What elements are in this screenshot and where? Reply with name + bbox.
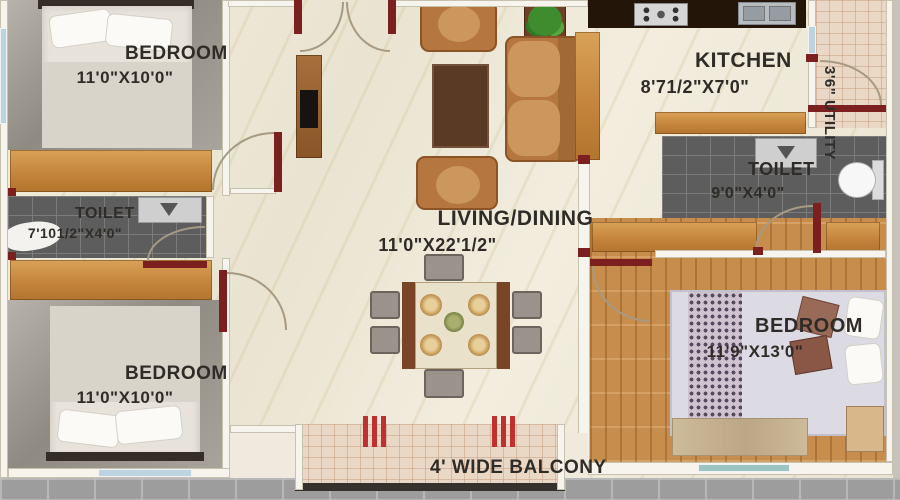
dining-chair — [370, 326, 400, 354]
stove-icon — [634, 3, 688, 26]
plate-icon — [468, 294, 490, 316]
room-label: LIVING/DINING 11'0"X22'1/2" — [330, 206, 545, 259]
plant-icon — [528, 4, 562, 36]
window — [0, 28, 7, 124]
rug — [672, 418, 808, 456]
door-jamb — [753, 247, 763, 255]
door-leaf — [590, 259, 652, 266]
door-jamb — [8, 188, 16, 196]
room-dims: 11'9"X13'0" — [707, 342, 804, 361]
plate-icon — [420, 334, 442, 356]
room-name: KITCHEN — [695, 48, 792, 74]
sliding-door-marker — [381, 416, 386, 447]
sliding-door-marker — [363, 416, 368, 447]
wall — [578, 155, 590, 462]
window — [98, 469, 192, 477]
door-jamb — [8, 252, 16, 260]
armchair-cushion — [438, 6, 480, 42]
sofa-cushion — [508, 41, 560, 97]
window — [808, 26, 816, 54]
room-dims: 11'0"X10'0" — [77, 388, 174, 407]
kitchen-tall-cabinet — [575, 32, 600, 160]
sink-bowl — [743, 6, 765, 21]
wall — [886, 0, 893, 462]
room-dims: 11'0"X10'0" — [77, 68, 174, 87]
wall — [655, 250, 886, 258]
toilet-bowl-icon — [838, 162, 876, 198]
wall — [230, 425, 302, 433]
dining-chair — [370, 291, 400, 319]
coffee-table — [432, 64, 489, 148]
center-dish-icon — [444, 312, 464, 332]
armchair-cushion — [436, 166, 480, 204]
sofa-cushion — [508, 100, 560, 156]
sliding-door-marker — [492, 416, 497, 447]
room-label: TOILET 7'101/2"X4'0" — [10, 204, 140, 244]
shower-icon — [160, 203, 178, 216]
room-name: TOILET — [75, 204, 135, 224]
wall — [206, 196, 214, 258]
dining-chair — [512, 326, 542, 354]
room-label: BEDROOM 11'0"X10'0" — [30, 362, 220, 410]
room-name: 3'6" UTILITY — [819, 66, 838, 160]
right-margin — [893, 0, 900, 478]
balcony-edge — [295, 483, 565, 491]
room-label: BEDROOM 11'0"X10'0" — [30, 42, 220, 90]
dining-chair — [424, 369, 464, 398]
door-jamb — [578, 155, 590, 164]
bedside-cabinet — [846, 406, 884, 452]
plate-icon — [420, 294, 442, 316]
door-leaf — [274, 132, 282, 192]
dining-chair — [512, 291, 542, 319]
door-jamb — [578, 248, 590, 257]
room-name: 4' WIDE BALCONY — [430, 456, 607, 480]
wall — [228, 0, 298, 7]
wall — [230, 433, 295, 478]
door-jamb — [806, 54, 818, 62]
window — [698, 464, 790, 472]
sink-bowl — [769, 6, 791, 21]
door-leaf — [143, 261, 207, 268]
bed-pillow — [844, 342, 884, 386]
bed-footboard — [46, 452, 204, 461]
room-name: BEDROOM — [755, 314, 863, 339]
room-dims: 9'0"X4'0" — [711, 185, 785, 202]
room-name: TOILET — [748, 158, 815, 181]
wall — [295, 424, 303, 490]
door-leaf — [813, 203, 821, 253]
door-leaf — [219, 270, 227, 332]
room-label: KITCHEN 8'71/2"X7'0" — [600, 48, 790, 101]
wall — [388, 0, 588, 7]
sliding-door-marker — [372, 416, 377, 447]
room-name: BEDROOM — [125, 42, 228, 66]
room-dims: 8'71/2"X7'0" — [641, 77, 750, 97]
wardrobe — [10, 150, 212, 192]
room-label: BEDROOM 11'9"X13'0" — [660, 314, 850, 364]
room-name: BEDROOM — [125, 362, 228, 386]
sliding-door-marker — [510, 416, 515, 447]
sliding-door-marker — [501, 416, 506, 447]
plate-icon — [468, 334, 490, 356]
room-dims: 7'101/2"X4'0" — [28, 225, 122, 241]
floor-plan: BEDROOM 11'0"X10'0" TOILET 7'101/2"X4'0"… — [0, 0, 900, 500]
room-name: LIVING/DINING — [438, 206, 594, 232]
kitchen-counter-wood — [655, 112, 806, 134]
room-dims: 11'0"X22'1/2" — [378, 235, 496, 255]
tv-icon — [300, 90, 318, 128]
wardrobe — [592, 222, 757, 252]
room-label: TOILET 9'0"X4'0" — [668, 158, 828, 204]
wardrobe — [826, 222, 880, 252]
bed-pillow — [114, 405, 183, 446]
